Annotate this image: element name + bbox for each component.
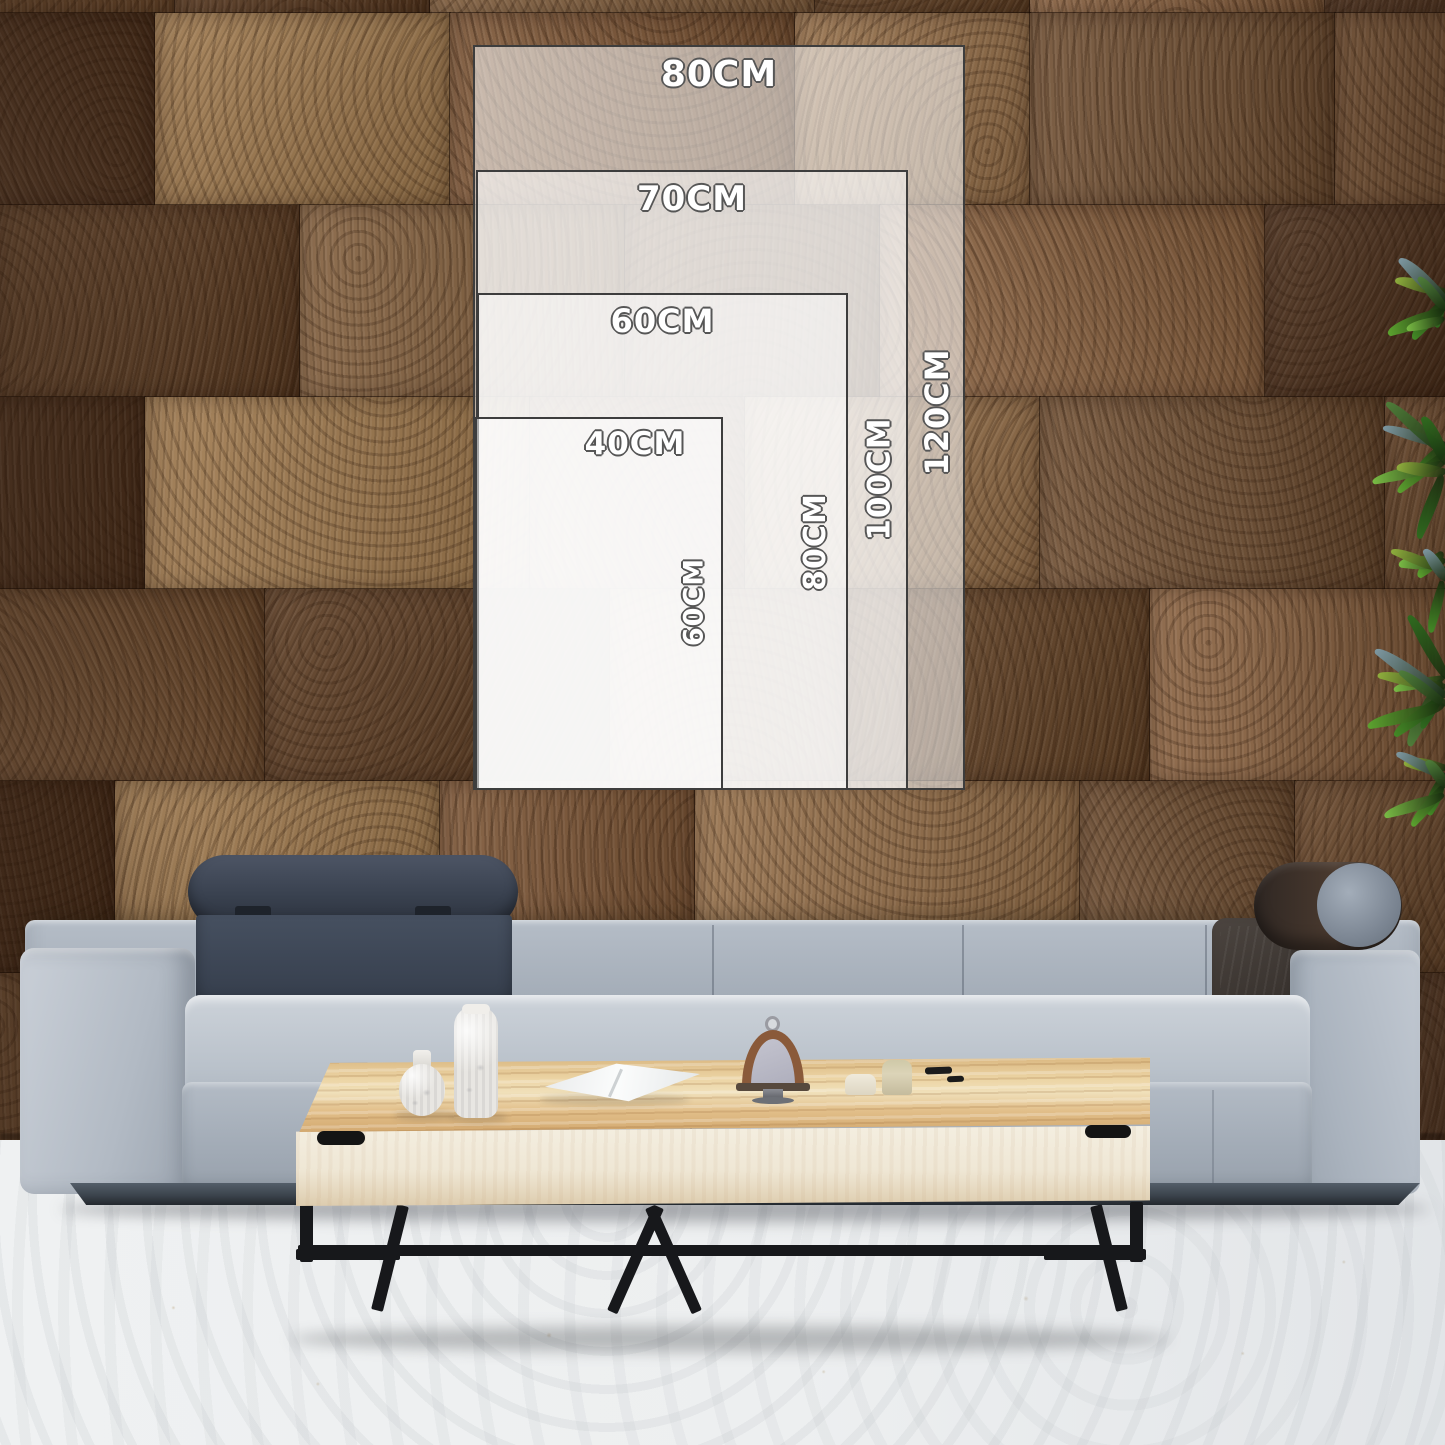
wood-block [1325, 0, 1445, 13]
living-room-size-guide: 80CM 120CM 70CM 100CM 60CM 80CM 40CM 60C… [0, 0, 1445, 1445]
wood-block [175, 0, 430, 13]
drawer-handle [1085, 1125, 1131, 1138]
white-ribbed-vase-gourd [399, 1064, 445, 1116]
size-rect-40x60: 40CM 60CM [475, 417, 723, 790]
wood-block [430, 0, 815, 13]
size-height-label: 100CM [865, 417, 896, 540]
size-height-label: 80CM [801, 493, 831, 591]
size-width-label: 60CM [479, 305, 846, 337]
plant-leaf [1423, 579, 1445, 633]
wood-block [1335, 13, 1445, 205]
size-width-label: 40CM [513, 429, 757, 460]
table-leg-bar [1044, 1249, 1146, 1260]
bolster-end-cap [1317, 863, 1401, 947]
seat-seam [1212, 1090, 1214, 1190]
table-front-panel [296, 1126, 1150, 1206]
wood-block [0, 0, 175, 13]
wood-block [1040, 397, 1385, 589]
dome-clock-foot [752, 1097, 794, 1104]
wood-block [815, 0, 1030, 13]
wood-block [1030, 13, 1335, 205]
drawer-handle [317, 1131, 365, 1145]
size-height-label: 120CM [921, 348, 953, 475]
wood-block [0, 589, 265, 781]
sofa-armrest-left [20, 948, 195, 1194]
size-height-label: 60CM [681, 558, 708, 646]
tabletop-slot [925, 1067, 952, 1075]
wood-block [0, 13, 155, 205]
wood-block [0, 205, 300, 397]
wood-block [155, 13, 450, 205]
size-width-label: 70CM [478, 182, 906, 216]
tabletop-slot [947, 1076, 964, 1083]
table-floor-shadow [290, 1326, 1170, 1352]
wood-block [0, 397, 145, 589]
vase-lip [462, 1004, 490, 1014]
candle-small [845, 1074, 876, 1095]
wood-block [1030, 0, 1325, 13]
white-ribbed-vase-tall [454, 1006, 498, 1118]
table-stretcher [298, 1245, 1143, 1256]
potted-plant-leaves [1380, 230, 1445, 810]
size-width-label: 80CM [475, 57, 963, 93]
candle-tall [882, 1060, 912, 1095]
